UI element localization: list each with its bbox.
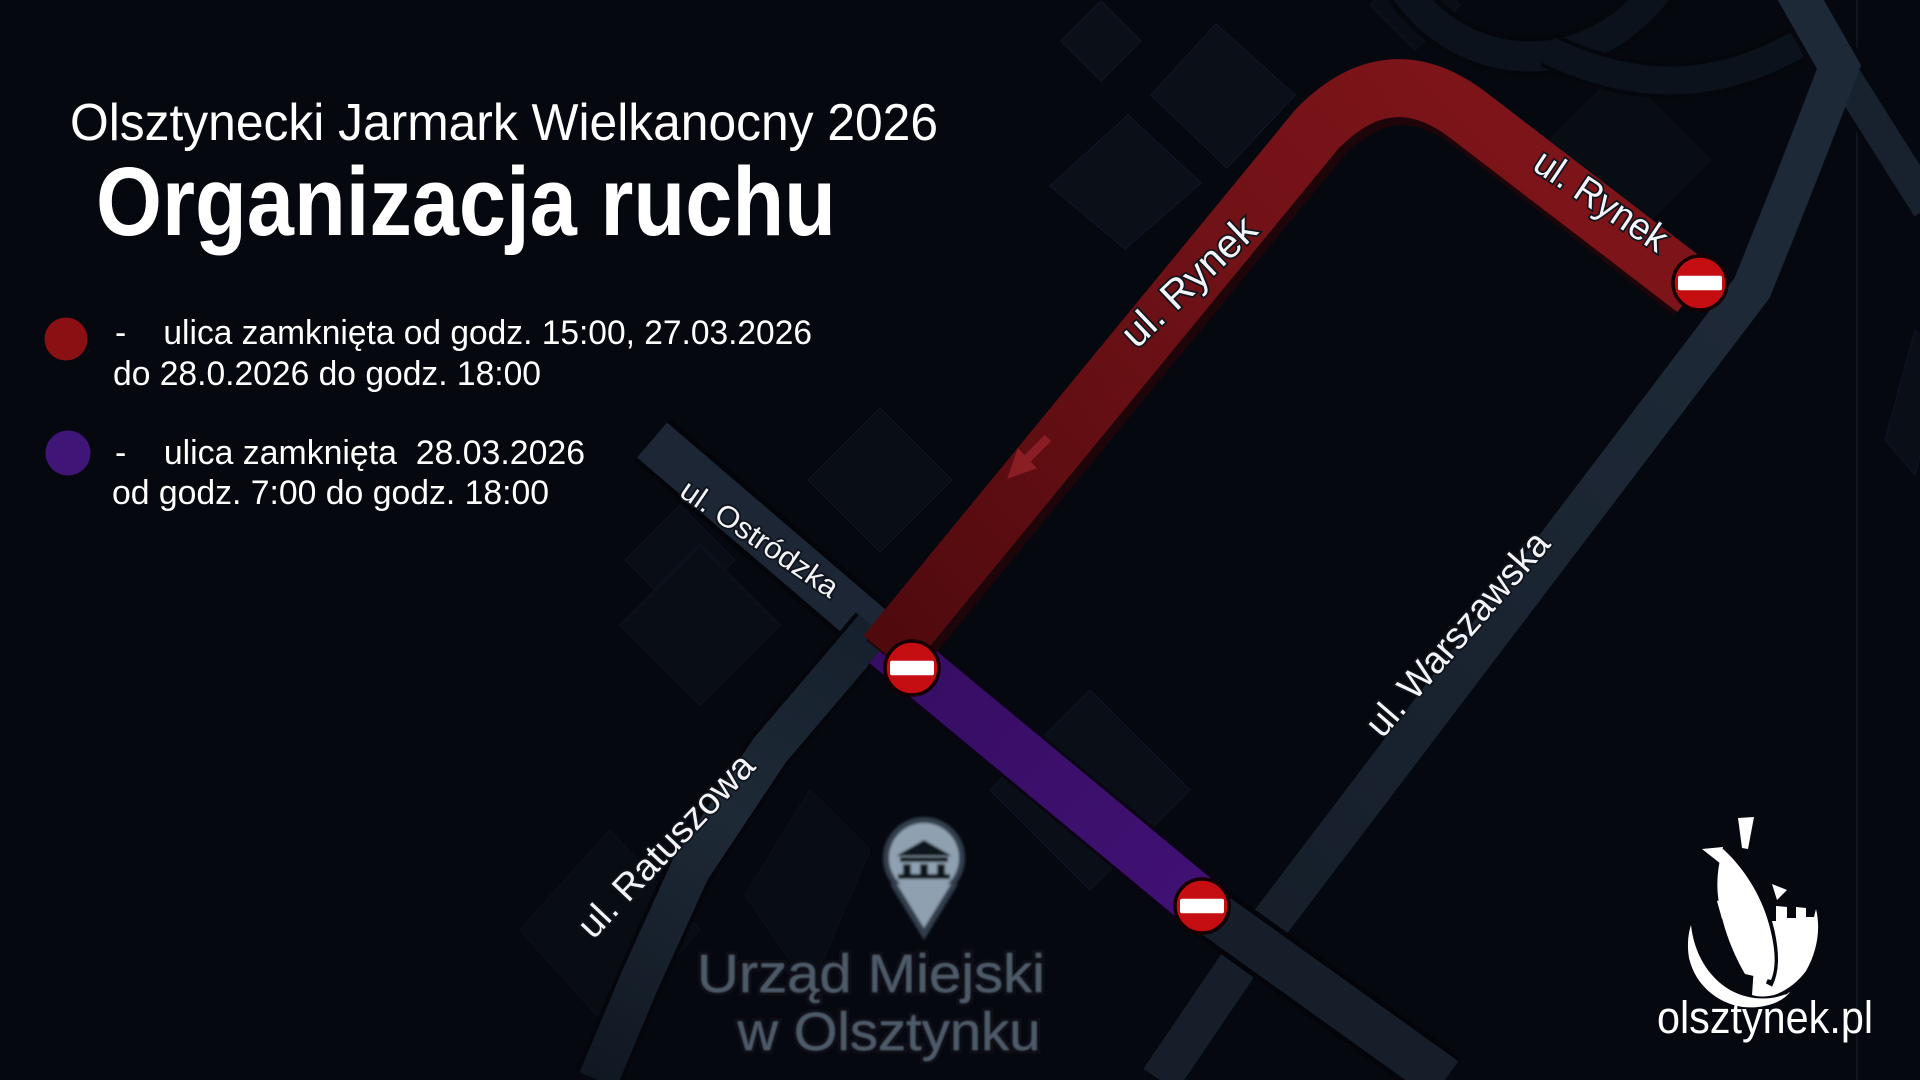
svg-text:Organizacja ruchu: Organizacja ruchu	[96, 147, 836, 256]
svg-text:- ulica zamknięta od godz.: - ulica zamknięta od godz. 15:00, 27.03.…	[115, 314, 812, 352]
svg-text:- ulica zamknięta 28.03.20: - ulica zamknięta 28.03.2026	[115, 434, 585, 472]
svg-text:olsztynek.pl: olsztynek.pl	[1657, 992, 1873, 1043]
svg-text:Olsztynecki Jarmark Wielkanocn: Olsztynecki Jarmark Wielkanocny 2026	[70, 94, 938, 152]
svg-text:od godz. 7:00 do godz. 18:00: od godz. 7:00 do godz. 18:00	[112, 474, 549, 512]
svg-text:Urząd Miejski: Urząd Miejski	[697, 944, 1045, 1004]
svg-text:do 28.0.2026 do godz. 18:00: do 28.0.2026 do godz. 18:00	[113, 355, 541, 393]
svg-text:w Olsztynku: w Olsztynku	[736, 1002, 1040, 1062]
